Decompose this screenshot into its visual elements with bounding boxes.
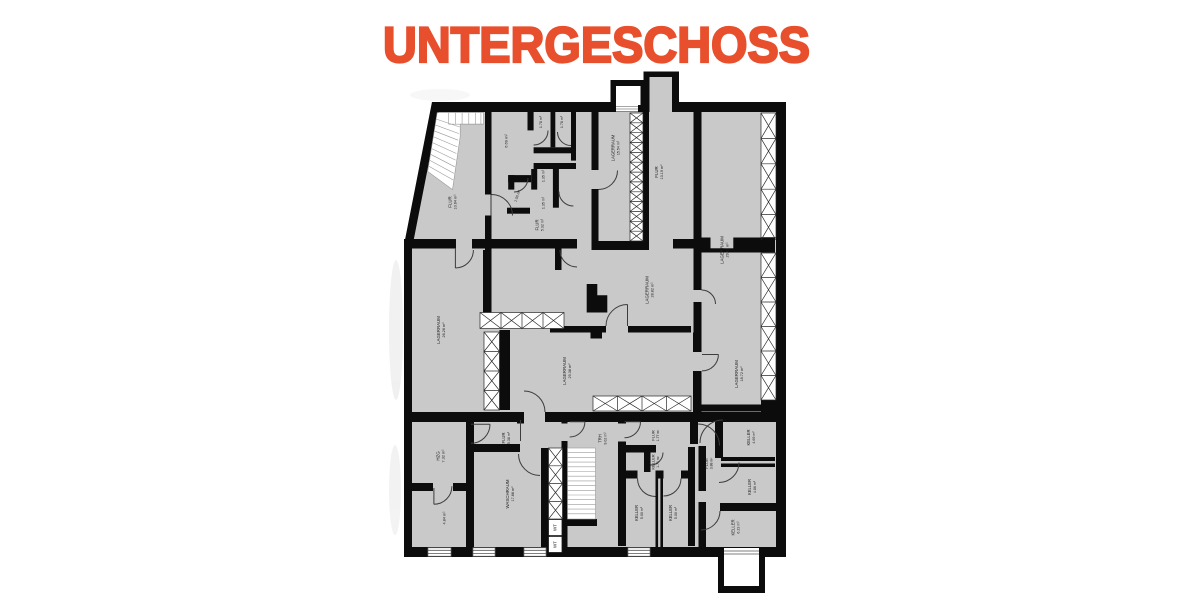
svg-text:KELLER: KELLER — [731, 519, 736, 535]
svg-text:LAGERRAUM: LAGERRAUM — [611, 134, 616, 161]
svg-text:4.86 m²: 4.86 m² — [753, 480, 757, 493]
svg-text:FLUR: FLUR — [654, 166, 659, 177]
svg-text:4.69 m²: 4.69 m² — [752, 431, 756, 444]
svg-text:29.38 m²: 29.38 m² — [568, 363, 572, 379]
svg-text:1.35 m²: 1.35 m² — [542, 196, 546, 209]
svg-text:6.23 m²: 6.23 m² — [736, 521, 740, 534]
svg-text:FLUR: FLUR — [535, 220, 540, 231]
svg-text:KELLER: KELLER — [668, 505, 673, 521]
svg-text:17.88 m²: 17.88 m² — [511, 486, 515, 502]
svg-text:4.84 m²: 4.84 m² — [443, 511, 447, 525]
svg-text:1.78 m²: 1.78 m² — [539, 115, 543, 128]
svg-text:FLUR: FLUR — [448, 196, 453, 207]
svg-text:5.00 m²: 5.00 m² — [640, 506, 644, 519]
svg-text:KELLER: KELLER — [651, 454, 656, 469]
svg-text:KELLER: KELLER — [746, 429, 751, 445]
svg-text:HZG: HZG — [436, 451, 441, 461]
svg-text:10.64 m²: 10.64 m² — [454, 194, 458, 210]
svg-text:WASCHRAUM: WASCHRAUM — [505, 479, 510, 508]
svg-text:FLUR: FLUR — [651, 430, 656, 441]
svg-text:FLUR: FLUR — [501, 433, 506, 444]
svg-text:28.82 m²: 28.82 m² — [651, 282, 655, 298]
svg-text:1.35 m²: 1.35 m² — [542, 169, 546, 182]
svg-text:KELLER: KELLER — [747, 479, 752, 495]
svg-text:TRH: TRH — [598, 434, 603, 443]
svg-text:15.54 m²: 15.54 m² — [616, 140, 620, 155]
svg-text:26.26 m²: 26.26 m² — [442, 322, 446, 338]
svg-text:1.70 m²: 1.70 m² — [656, 455, 660, 467]
svg-text:29.81 m²: 29.81 m² — [726, 242, 730, 258]
svg-text:13.19 m²: 13.19 m² — [660, 164, 664, 180]
svg-text:5.32 m²: 5.32 m² — [540, 218, 544, 231]
svg-text:KELLER: KELLER — [634, 505, 639, 521]
svg-text:18.72 m²: 18.72 m² — [740, 366, 744, 382]
svg-text:LAGERRAUM: LAGERRAUM — [720, 236, 725, 264]
svg-text:5.00 m²: 5.00 m² — [674, 506, 678, 519]
svg-text:LAGERRAUM: LAGERRAUM — [645, 276, 650, 304]
svg-text:1.77 m²: 1.77 m² — [656, 429, 660, 441]
svg-text:LAGERRAUM: LAGERRAUM — [734, 360, 739, 388]
svg-text:FLUR: FLUR — [704, 458, 709, 469]
svg-text:1.78 m²: 1.78 m² — [560, 115, 564, 128]
svg-text:UNTERGESCHOSS: UNTERGESCHOSS — [383, 17, 810, 73]
svg-text:6.69 m²: 6.69 m² — [504, 134, 509, 148]
svg-text:9.02 m²: 9.02 m² — [603, 432, 607, 445]
svg-text:3.88 m²: 3.88 m² — [710, 457, 714, 469]
svg-text:7.32 m²: 7.32 m² — [442, 449, 446, 463]
svg-text:LAGERRAUM: LAGERRAUM — [562, 357, 567, 385]
svg-text:LAGERRAUM: LAGERRAUM — [436, 316, 441, 344]
svg-text:5.38 m²: 5.38 m² — [507, 431, 511, 444]
